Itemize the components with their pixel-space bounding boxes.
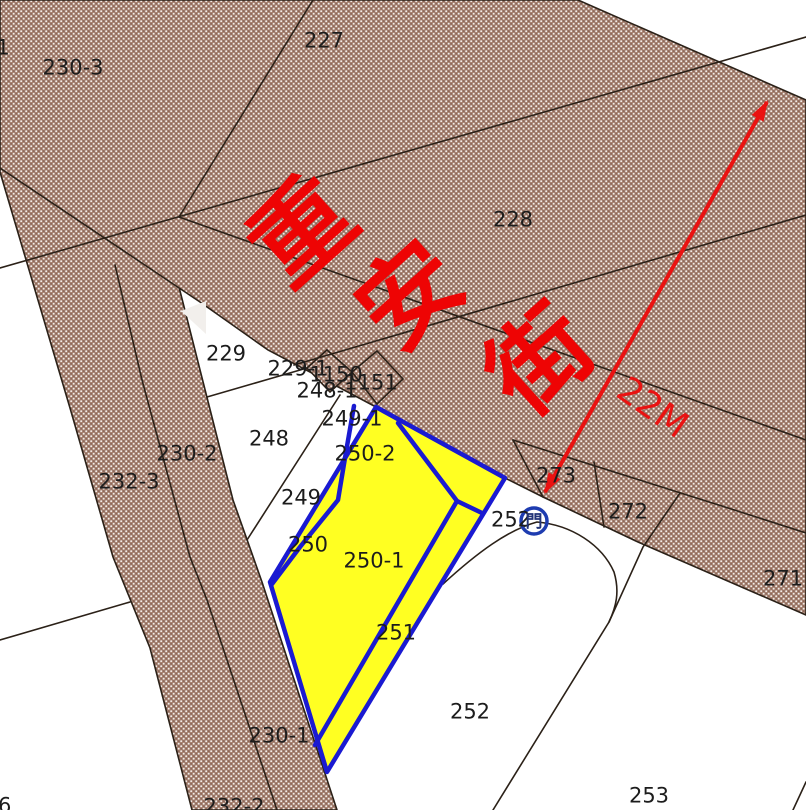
parcel-label-271: 271 — [763, 566, 803, 590]
parcel-label-253: 253 — [629, 783, 669, 807]
parcel-label-248: 248 — [249, 426, 289, 450]
cadastral-map: 重安街 22M252門 1230-3227228229229-111501151… — [0, 0, 806, 810]
parcel-label-249: 249 — [281, 485, 321, 509]
parcel-label-230-3: 230-3 — [42, 55, 103, 79]
parcel-label-250-2: 250-2 — [334, 441, 395, 465]
parcel-label-232-3: 232-3 — [98, 469, 159, 493]
map-canvas[interactable]: 重安街 22M252門 1230-3227228229229-111501151… — [0, 0, 806, 810]
parcel-label-46: 46 — [0, 793, 11, 810]
parcel-label-273: 273 — [536, 463, 576, 487]
parcel-label-230-2: 230-2 — [156, 441, 217, 465]
parcel-label-227: 227 — [304, 28, 344, 52]
door-label-glyph: 門 — [526, 512, 543, 532]
parcel-label-232-2: 232-2 — [203, 794, 264, 810]
parcel-label-248-1: 248-1 — [296, 378, 357, 402]
parcel-label-252: 252 — [450, 699, 490, 723]
parcel-label-1: 1 — [0, 35, 10, 59]
parcel-label-230-1: 230-1 — [248, 723, 309, 747]
parcel-label-251: 251 — [376, 620, 416, 644]
parcel-label-250: 250 — [288, 532, 328, 556]
parcel-label-229: 229 — [206, 341, 246, 365]
parcel-label-272: 272 — [608, 499, 648, 523]
parcel-label-228: 228 — [493, 207, 533, 231]
parcel-label-250-1: 250-1 — [343, 548, 404, 572]
parcel-label-249-1: 249-1 — [321, 406, 382, 430]
